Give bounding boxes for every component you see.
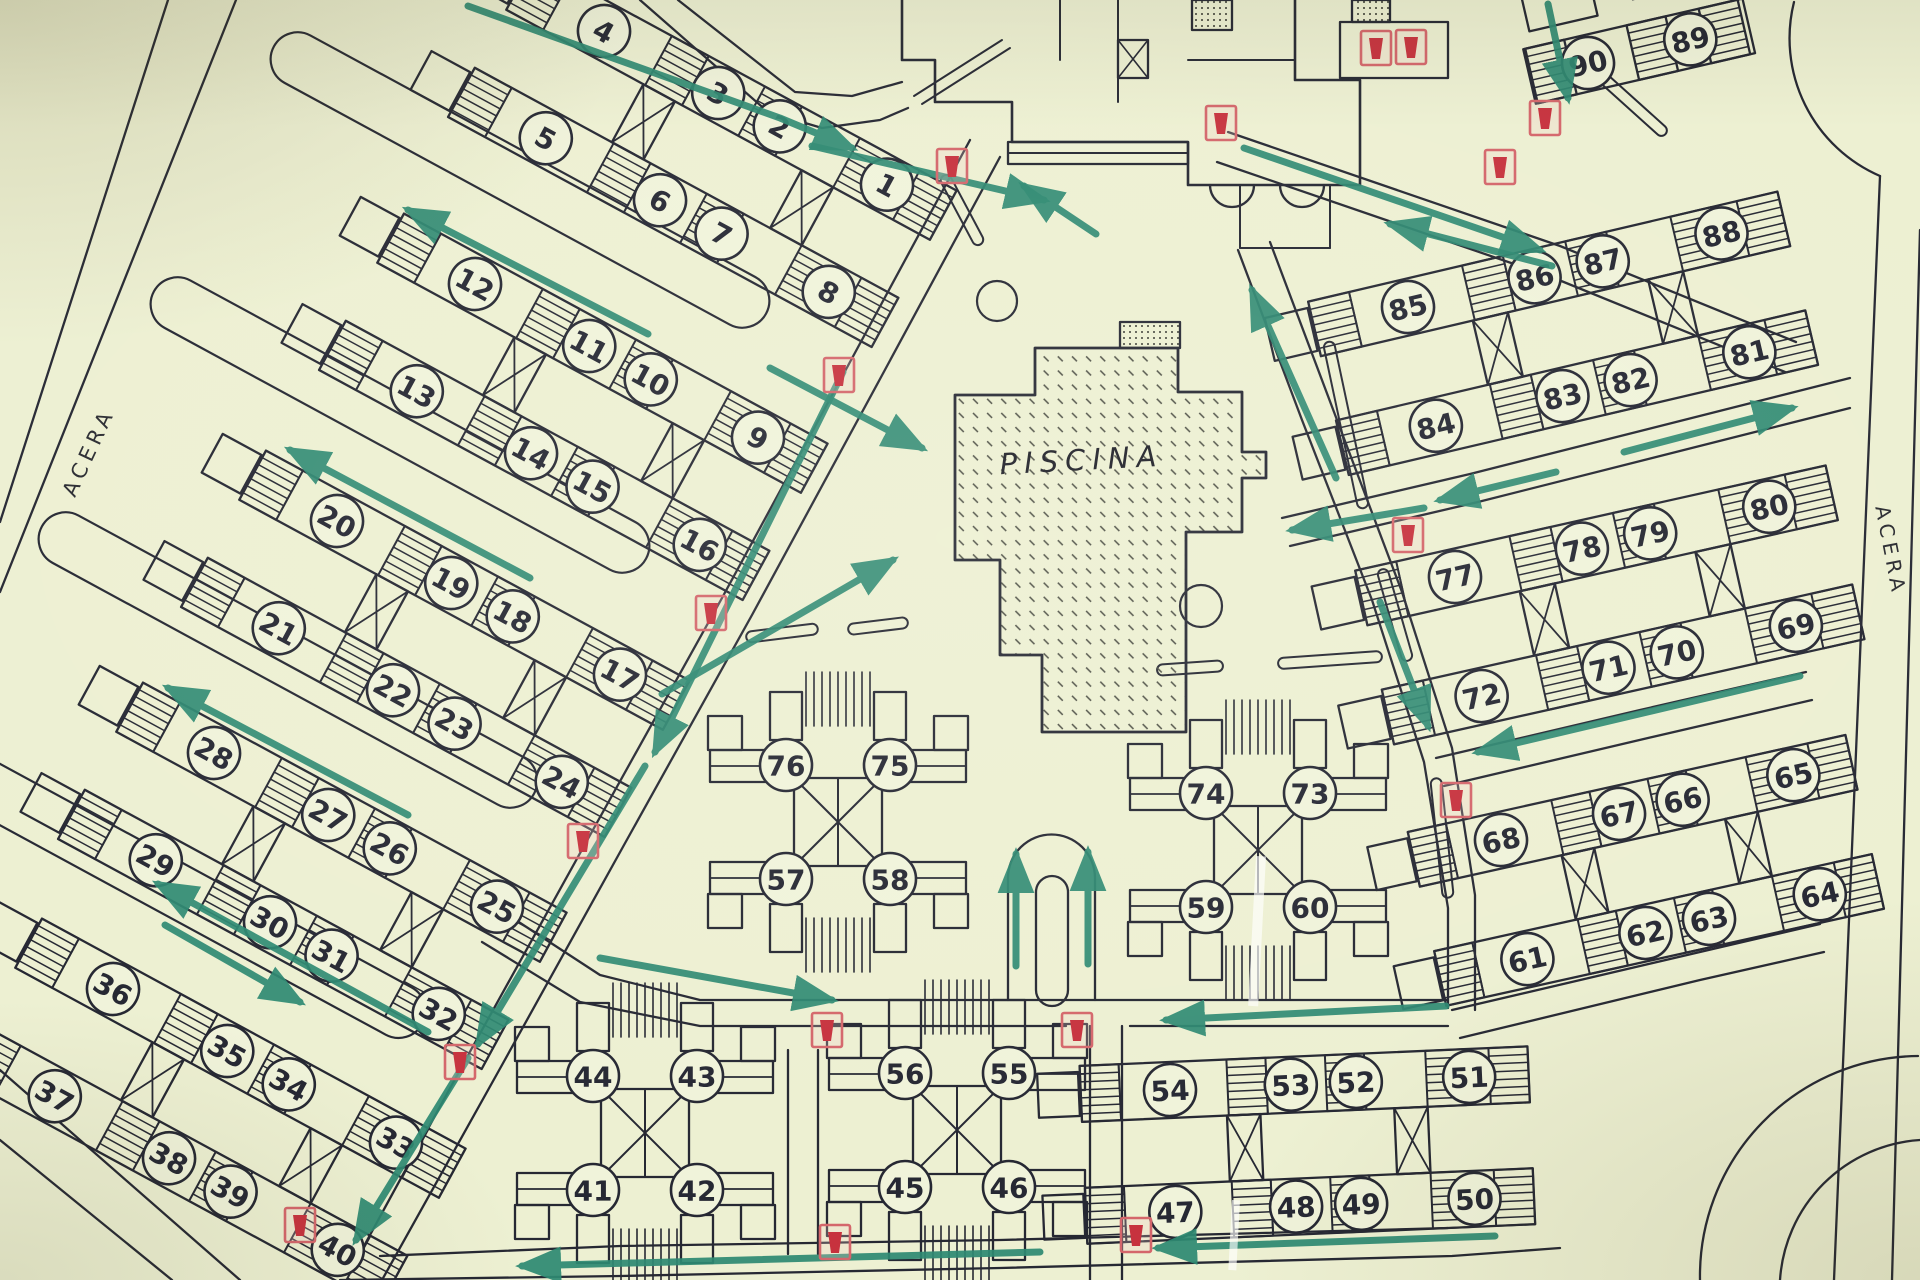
building-line (1086, 1210, 1125, 1212)
building-line (524, 324, 561, 344)
building-line (1586, 950, 1624, 958)
building-line (1494, 1184, 1533, 1186)
building-line (1700, 8, 1739, 17)
hydrant-icon (445, 1045, 475, 1079)
building-line (1793, 505, 1834, 514)
hydrant-icon (696, 596, 726, 630)
annex-block (1340, 22, 1448, 78)
building-line (1515, 550, 1556, 559)
building-line (1234, 1228, 1273, 1230)
building-76-number: 76 (767, 750, 806, 783)
wing-block (934, 716, 968, 750)
building-line (1516, 558, 1557, 567)
building-line (1228, 1098, 1267, 1100)
building-line (1338, 419, 1379, 429)
wing-block (874, 692, 906, 740)
stair-entry (1312, 577, 1365, 630)
hydrant-icon (1206, 106, 1236, 140)
road-curve (1790, 2, 1880, 176)
cluster-54: 5453525147484950 (1037, 1046, 1535, 1245)
building-line (338, 335, 375, 355)
building-line (1556, 815, 1594, 823)
main-building-outline (902, 0, 1360, 185)
hydrant-icon (824, 358, 854, 392)
path-arrow (158, 884, 428, 1032)
wing-block (577, 1003, 609, 1051)
building-line (23, 954, 60, 974)
building-line (1493, 390, 1534, 400)
building-line (452, 110, 489, 130)
building-line (1636, 55, 1675, 64)
hydrant-icon (812, 1013, 842, 1047)
hydrant-icon (568, 824, 598, 858)
building-58-number: 58 (871, 864, 910, 897)
building-line (1811, 751, 1849, 759)
building-line (477, 410, 514, 430)
building-line (1774, 349, 1815, 359)
building-line (1228, 1090, 1267, 1092)
building-line (1439, 966, 1477, 974)
building-line (1562, 839, 1600, 847)
building-line (1792, 497, 1833, 506)
map-drawing: 7675575874735960444341425655454643215678… (0, 0, 1920, 1280)
building-line (1415, 855, 1453, 863)
building-line (535, 303, 572, 323)
building-line (1495, 1208, 1534, 1210)
building-line (606, 157, 643, 177)
building-54-number: 54 (1150, 1074, 1190, 1109)
building-line (401, 533, 438, 553)
building-line (1740, 207, 1781, 217)
stair-block (15, 919, 79, 988)
building-56-number: 56 (886, 1058, 925, 1091)
building-line (1081, 1104, 1120, 1106)
building-line (1818, 616, 1859, 625)
building-line (1232, 1188, 1271, 1190)
building-line (531, 310, 568, 330)
stair-entry (0, 902, 37, 962)
building-line (1583, 934, 1621, 942)
building-line (1786, 473, 1827, 482)
building-line (1795, 512, 1836, 521)
building-line (19, 961, 56, 981)
building-line (342, 328, 379, 348)
building-line (107, 1129, 144, 1149)
building-line (328, 668, 365, 688)
building-line (120, 725, 157, 745)
building-line (397, 540, 434, 560)
building-line (1310, 300, 1351, 310)
building-line (520, 331, 557, 351)
building-line (1746, 231, 1787, 241)
building-line (104, 1136, 141, 1156)
pool-steps (1120, 322, 1180, 348)
stair-block (239, 451, 303, 520)
building-line (386, 561, 423, 581)
building-line (1464, 264, 1505, 274)
building-line (1553, 800, 1591, 808)
building-line (1768, 326, 1809, 336)
building-line (1490, 1086, 1529, 1088)
building-line (1518, 566, 1559, 575)
building-48-number: 48 (1276, 1190, 1316, 1225)
wing-block (1354, 744, 1388, 778)
building-49-number: 49 (1341, 1187, 1381, 1222)
path-arrow (522, 1252, 1040, 1266)
building-line (1775, 357, 1816, 367)
building-line (1540, 662, 1581, 671)
building-line (1822, 631, 1863, 640)
building-line (1413, 847, 1451, 855)
building-line (327, 356, 364, 376)
building-line (1546, 693, 1587, 702)
building-line (193, 586, 230, 606)
wing-block (1190, 932, 1222, 980)
building-line (158, 1036, 195, 1056)
wing-block (1053, 1202, 1087, 1236)
wing-block (741, 1205, 775, 1239)
building-line (81, 797, 118, 817)
wing-block (708, 894, 742, 928)
building-line (396, 228, 433, 248)
stair-entry (1037, 1072, 1080, 1118)
building-line (1314, 315, 1355, 325)
building-line (1747, 238, 1788, 248)
wing-block (1294, 720, 1326, 768)
sidewalk-label-left: ACERA (58, 404, 120, 500)
building-line (267, 786, 304, 806)
building-line (259, 800, 296, 820)
building-line (1541, 669, 1582, 678)
building-41-number: 41 (574, 1175, 613, 1208)
building-line (119, 1108, 156, 1128)
building-line (914, 40, 1002, 96)
building-line (208, 893, 245, 913)
building-46-number: 46 (990, 1172, 1029, 1205)
building-line (278, 765, 315, 785)
building-line (481, 403, 518, 423)
building-line (124, 718, 161, 738)
building-line (528, 317, 565, 337)
building-line (162, 1029, 199, 1049)
building-line (1581, 926, 1619, 934)
building-line (1441, 974, 1479, 982)
building-line (390, 554, 427, 574)
building-line (1343, 442, 1384, 452)
stair-entry (202, 434, 262, 494)
wing-block (770, 692, 802, 740)
building-line (1228, 1106, 1267, 1108)
building-line (1081, 1088, 1120, 1090)
building-line (466, 431, 503, 451)
wing-block (577, 1215, 609, 1263)
building-line (1086, 1202, 1125, 1204)
building-line (598, 171, 635, 191)
building-line (1770, 334, 1811, 344)
building-line (166, 1022, 203, 1042)
building-line (1501, 421, 1542, 431)
building-line (1492, 383, 1533, 393)
median-strip (848, 617, 909, 635)
building-line (251, 479, 288, 499)
building-line (1082, 1112, 1121, 1114)
hydrant-icon (1530, 101, 1560, 135)
building-line (189, 593, 226, 613)
building-line (1545, 685, 1586, 694)
building-line (1766, 318, 1807, 328)
wing-block (889, 1000, 921, 1048)
building-line (1816, 774, 1854, 782)
building-47-number: 47 (1155, 1196, 1195, 1231)
building-line (1744, 223, 1785, 233)
building-line (204, 565, 241, 585)
stair-entry (79, 666, 139, 726)
building-line (1628, 24, 1667, 33)
path-arrow (1380, 602, 1428, 726)
hydrant-icon (1121, 1218, 1151, 1252)
hydrant-icon (1062, 1013, 1092, 1047)
building-line (1637, 63, 1676, 72)
building-line (1588, 958, 1626, 966)
building-53-number: 53 (1271, 1068, 1311, 1103)
road-island (1036, 876, 1068, 1006)
building-line (247, 486, 284, 506)
wing-block (1128, 922, 1162, 956)
building-line (1579, 919, 1617, 927)
wing-block (1190, 720, 1222, 768)
building-line (100, 1143, 137, 1163)
wing-block (1128, 744, 1162, 778)
path-arrow (1024, 186, 1096, 234)
building-line (1081, 1096, 1120, 1098)
building-line (1555, 807, 1593, 815)
building-line (1842, 893, 1880, 901)
building-line (1790, 489, 1831, 498)
building-line (258, 465, 295, 485)
service-block (1192, 0, 1232, 30)
hydrant-icon (1441, 783, 1471, 817)
building-line (31, 940, 68, 960)
hydrant-icon (820, 1225, 850, 1259)
building-line (471, 75, 508, 95)
path-arrow (600, 958, 832, 1000)
building-line (1490, 1094, 1529, 1096)
wing-block (1294, 932, 1326, 980)
building-line (1473, 303, 1514, 313)
stair-entry (1338, 696, 1391, 749)
building-line (1232, 1196, 1271, 1198)
building-line (1772, 342, 1813, 352)
building-line (1340, 426, 1381, 436)
stair-entry (410, 51, 470, 111)
building-line (1837, 870, 1875, 878)
building-line (1471, 295, 1512, 305)
building-line (591, 185, 628, 205)
building-line (1466, 272, 1507, 282)
building-line (1818, 782, 1856, 790)
cluster-76: 76755758 (708, 672, 968, 972)
scratch-artifact (1228, 1200, 1240, 1270)
building-42-number: 42 (678, 1175, 717, 1208)
building-line (610, 150, 647, 170)
building-line (463, 89, 500, 109)
building-line (460, 96, 497, 116)
building-line (1742, 215, 1783, 225)
building-74-number: 74 (1187, 778, 1226, 811)
building-line (324, 675, 361, 695)
wing-block (1354, 922, 1388, 956)
tree-circle (977, 281, 1017, 321)
wing-block (934, 894, 968, 928)
wing-block (708, 716, 742, 750)
building-line (1233, 1220, 1272, 1222)
wing-block (874, 904, 906, 952)
building-line (1469, 287, 1510, 297)
hydrant-icon (285, 1208, 315, 1242)
building-line (270, 779, 307, 799)
building-line (115, 1115, 152, 1135)
building-line (1086, 1218, 1125, 1220)
building-59-number: 59 (1187, 892, 1226, 925)
hydrant-icon (1361, 31, 1391, 65)
building-line (132, 704, 169, 724)
sidewalk-label-right: ACERA (1870, 503, 1911, 598)
building-line (389, 242, 426, 262)
building-line (393, 547, 430, 567)
building-75-number: 75 (871, 750, 910, 783)
hydrant-icon (1396, 30, 1426, 64)
canopy-arc (1210, 185, 1254, 207)
road-edge (1892, 230, 1920, 1280)
stair-entry (143, 541, 203, 601)
building-line (334, 342, 371, 362)
wing-block (515, 1205, 549, 1239)
building-line (323, 363, 360, 383)
wing-block (741, 1027, 775, 1061)
building-line (177, 1001, 214, 1021)
row-building (1518, 0, 1598, 31)
path-arrow (1166, 1006, 1446, 1020)
building-line (473, 417, 510, 437)
building-line (1560, 831, 1598, 839)
stair-entry (340, 197, 400, 257)
building-line (331, 661, 368, 681)
building-line (1511, 535, 1552, 544)
hydrant-icon (937, 149, 967, 183)
building-line (62, 832, 99, 852)
building-line (1809, 743, 1847, 751)
building-line (1813, 592, 1854, 601)
building-line (1312, 308, 1353, 318)
building-line (1815, 600, 1856, 609)
cluster-44: 44434142 (515, 983, 775, 1280)
building-44-number: 44 (574, 1061, 613, 1094)
building-line (173, 1008, 210, 1028)
cluster-36: 3635343337383940 (0, 897, 466, 1280)
building-60-number: 60 (1291, 892, 1330, 925)
building-73-number: 73 (1291, 778, 1330, 811)
building-line (1495, 398, 1536, 408)
building-55-number: 55 (990, 1058, 1029, 1091)
building-line (385, 249, 422, 269)
building-line (111, 1122, 148, 1142)
building-line (1317, 331, 1358, 341)
wing-block (681, 1215, 713, 1263)
building-57-number: 57 (767, 864, 806, 897)
building-line (602, 164, 639, 184)
building-line (1227, 1074, 1266, 1076)
building-line (1416, 863, 1454, 871)
cluster-85: 8586878884838281 (1263, 192, 1818, 486)
hydrant-icon (1393, 518, 1423, 552)
building-line (1445, 990, 1483, 998)
building-line (1738, 199, 1779, 209)
stair-entry (469, 0, 529, 4)
road-curve (1700, 1056, 1918, 1280)
building-line (1835, 862, 1873, 870)
building-line (128, 711, 165, 731)
resort-site-plan-map: 7675575874735960444341425655454643215678… (0, 0, 1920, 1280)
road-edge (0, 0, 236, 592)
building-line (1494, 1176, 1533, 1178)
building-45-number: 45 (886, 1172, 925, 1205)
building-line (456, 103, 493, 123)
service-block (1352, 0, 1390, 22)
building-line (1513, 543, 1554, 552)
building-43-number: 43 (678, 1061, 717, 1094)
building-line (1411, 839, 1449, 847)
building-line (382, 568, 419, 588)
building-50-number: 50 (1454, 1182, 1494, 1217)
scratch-artifact (1248, 856, 1266, 1006)
building-line (216, 879, 253, 899)
building-line (1520, 574, 1561, 583)
building-51-number: 51 (1449, 1061, 1489, 1096)
building-line (196, 579, 233, 599)
building-line (243, 493, 280, 513)
building-line (263, 793, 300, 813)
building-52-number: 52 (1336, 1066, 1376, 1101)
building-line (335, 654, 372, 674)
stair-block (181, 558, 245, 627)
building-line (220, 872, 257, 892)
building-line (1788, 481, 1829, 490)
building-line (1315, 323, 1356, 333)
building-line (1496, 1216, 1535, 1218)
building-line (27, 947, 64, 967)
stair-entry (1367, 838, 1416, 890)
wing-block (770, 904, 802, 952)
building-line (1489, 1062, 1528, 1064)
road-curve (1008, 835, 1095, 1001)
building-line (169, 1015, 206, 1035)
building-line (343, 640, 380, 660)
building-line (1538, 654, 1579, 663)
building-line (462, 438, 499, 458)
building-line (77, 804, 114, 824)
building-line (1543, 677, 1584, 686)
building-line (664, 50, 701, 70)
building-line (70, 818, 107, 838)
building-line (1558, 823, 1596, 831)
building-line (595, 178, 632, 198)
building-line (1489, 1054, 1528, 1056)
pool (955, 348, 1266, 732)
building-line (467, 82, 504, 102)
building-line (1410, 831, 1448, 839)
building-line (262, 458, 299, 478)
road-curve (1780, 1140, 1920, 1280)
